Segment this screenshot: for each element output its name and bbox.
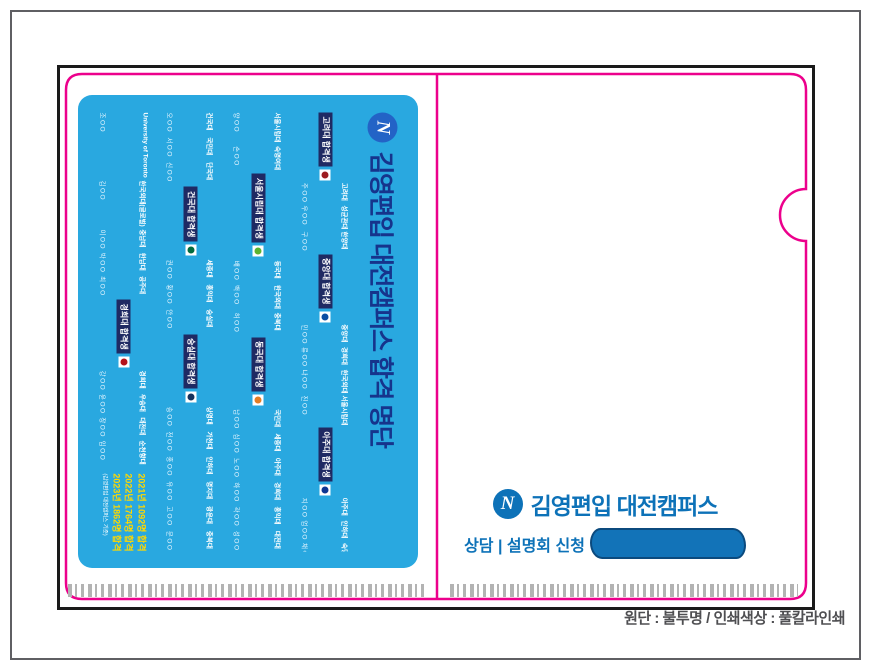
university-emblem-icon <box>253 245 264 256</box>
admitted-name: 양OO <box>233 112 243 142</box>
admitted-school: 중앙대 <box>341 324 351 345</box>
admit-entry: 세종대권OO <box>159 259 223 280</box>
admitted-name: 나OO <box>300 369 310 393</box>
cta-label: 상담 | 설명회 신청 <box>464 532 585 556</box>
admitted-name: 남OO <box>233 409 243 430</box>
admitted-name: 손OO <box>233 146 243 170</box>
admitted-name: 최OO <box>99 276 109 297</box>
admit-entry: 상명대송OO <box>159 406 223 427</box>
chip-label: 숭실대 합격생 <box>184 334 198 388</box>
admitted-name: 구OO <box>300 231 310 252</box>
admitted-school: 성균관대 <box>341 205 351 229</box>
weld-perforation-right <box>450 584 798 597</box>
chip-label: 서울시립대 합격생 <box>251 173 265 242</box>
admit-entry: 충북대허OO <box>226 312 290 333</box>
admitted-name: 류OO <box>300 346 310 367</box>
admitted-name: 조OO <box>99 112 109 177</box>
admit-entry: 우송대윤OO <box>92 393 156 414</box>
chip-label: 아주대 합격생 <box>318 427 332 481</box>
admitted-name: 엄OO <box>300 520 310 541</box>
admit-entry: 경희대강OO <box>92 370 156 391</box>
stats-line: 2021년 1092명 합격 <box>136 473 146 551</box>
admitted-name: 권OO <box>166 259 176 280</box>
admitted-name: 전OO <box>166 431 176 452</box>
university-chip: 중앙대 합격생 <box>318 254 332 322</box>
admitted-name: 노OO <box>233 457 243 478</box>
admit-entry: 고려대주OO <box>293 182 357 203</box>
admitted-name: 오OO <box>166 112 176 133</box>
weld-perforation-left <box>68 584 424 597</box>
admit-entry: 경희대류OO <box>293 346 357 367</box>
admitted-school: 순천향대 <box>139 440 149 464</box>
admit-entry: 숙명여대손OO <box>226 146 290 170</box>
admitted-name: 허OO <box>233 312 243 333</box>
admit-band: University of Toronto조OO한국외대(글로벌)김OO충남대이… <box>92 112 156 551</box>
chip-label: 동국대 합격생 <box>251 337 265 391</box>
admitted-school: 숭실대 <box>206 309 216 330</box>
admitted-school: 서울시립대 <box>273 112 283 142</box>
admit-entry: 인하대홍OO <box>159 456 223 477</box>
admit-entry: 서울시립대양OO <box>226 112 290 142</box>
admitted-school: 공주대 <box>139 276 149 297</box>
admit-entry: 대전대장OO <box>92 417 156 438</box>
admitted-school: 한국외대(글로벌) <box>139 180 149 226</box>
admit-entry: 한국외대백OO <box>226 285 290 309</box>
admitted-name: 채OO <box>300 542 310 551</box>
admitted-school: 상명대 <box>206 406 216 427</box>
admitted-school: 동국대 <box>273 260 283 281</box>
admitted-name: 고OO <box>166 506 176 527</box>
admitted-school: 한양대 <box>341 231 351 252</box>
admit-entry: 숭실대안OO <box>159 309 223 330</box>
admitted-school: 인하대 <box>206 456 216 477</box>
university-chip: 경희대 합격생 <box>117 299 131 367</box>
admit-entry: 단국대신OO <box>159 162 223 183</box>
admitted-school: 충북대 <box>206 530 216 551</box>
admitted-name: 성OO <box>233 530 243 551</box>
admitted-school: 충남대 <box>139 229 149 250</box>
stats-line: 2023년 1862명 합격 <box>111 473 121 551</box>
admitted-school: 충북대 <box>273 312 283 333</box>
admitted-school: 홍익대 <box>206 284 216 305</box>
admit-stats: 2021년 1092명 합격2022년 1764명 합격2023년 1862명 … <box>92 473 156 551</box>
chip-label: 중앙대 합격생 <box>318 254 332 308</box>
admitted-name: 곽OO <box>233 506 243 527</box>
admit-entry: 인하대엄OO <box>293 520 357 541</box>
card-title-row: N 김영편입 대전캠퍼스 합격 명단 <box>361 112 405 551</box>
admit-entry: 국민대서OO <box>159 137 223 158</box>
admitted-school: 광운대 <box>206 506 216 527</box>
admitted-school: 단국대 <box>206 162 216 183</box>
admitted-name: 신OO <box>166 162 176 183</box>
admit-bands: University of Toronto조OO한국외대(글로벌)김OO충남대이… <box>92 112 361 551</box>
university-emblem-icon <box>320 484 331 495</box>
admitted-school: 대전대 <box>273 530 283 551</box>
university-chip: 고려대 합격생 <box>318 112 332 180</box>
admit-entry: 아주대지OO <box>293 497 357 518</box>
admit-band: 서울시립대양OO숙명여대손OO서울시립대 합격생동국대배OO한국외대백OO충북대… <box>226 112 290 551</box>
admitted-name: 배OO <box>233 260 243 281</box>
university-chip: 건국대 합격생 <box>184 186 198 254</box>
admit-entry: 한양대구OO <box>293 231 357 252</box>
admitted-name: 안OO <box>166 309 176 330</box>
admitted-name: 지OO <box>300 497 310 518</box>
admitted-school: 한국외대 <box>341 369 351 393</box>
admitted-name: 주OO <box>300 182 310 203</box>
kimyoung-logo-icon: N <box>368 112 398 142</box>
admitted-school: 아주대 <box>273 457 283 478</box>
admit-entry: University of Toronto조OO <box>92 112 156 177</box>
admitted-school: 경희대 <box>139 370 149 391</box>
admitted-name: 장OO <box>99 417 109 438</box>
university-chip: 서울시립대 합격생 <box>251 173 265 256</box>
admitted-school: 국민대 <box>273 409 283 430</box>
admit-entry: 건국대오OO <box>159 112 223 133</box>
admitted-name: 서OO <box>166 137 176 158</box>
admitted-name: 홍OO <box>166 456 176 477</box>
admit-list-card: N 김영편입 대전캠퍼스 합격 명단 University of Toronto… <box>78 95 418 568</box>
admitted-school: 고려대 <box>341 182 351 203</box>
admit-entry: 홍익대곽OO <box>226 506 290 527</box>
admitted-name: 송OO <box>166 406 176 427</box>
admit-entry: 서울시립대진OO <box>293 395 357 425</box>
admitted-name: 황OO <box>166 284 176 305</box>
admitted-name: 문OO <box>166 530 176 551</box>
admitted-school: 경희대 <box>273 482 283 503</box>
admit-entry: 충남대이OO <box>92 229 156 250</box>
admit-entry: 광운대고OO <box>159 506 223 527</box>
admit-band: 고려대 합격생고려대주OO성균관대우OO한양대구OO중앙대 합격생중앙대민OO경… <box>293 112 357 551</box>
admitted-name: 심OO <box>233 433 243 454</box>
admit-band: 건국대오OO국민대서OO단국대신OO건국대 합격생세종대권OO홍익대황OO숭실대… <box>159 112 223 551</box>
kimyoung-logo-icon: N <box>493 489 523 519</box>
admit-entry: 세종대심OO <box>226 433 290 454</box>
admitted-school: 한남대 <box>139 252 149 273</box>
admitted-school: University of Toronto <box>142 112 149 177</box>
admit-entry: 명지대유OO <box>159 481 223 502</box>
admit-entry: 중앙대민OO <box>293 324 357 345</box>
admitted-school: 숙명여대 <box>273 146 283 170</box>
university-chip: 동국대 합격생 <box>251 337 265 405</box>
admit-entry: 숙명여대채OO <box>293 542 357 551</box>
admitted-school: 우송대 <box>139 393 149 414</box>
admitted-name: 윤OO <box>99 393 109 414</box>
admit-entry: 충북대문OO <box>159 530 223 551</box>
university-emblem-icon <box>253 394 264 405</box>
university-emblem-icon <box>185 244 196 255</box>
admit-entry: 성균관대우OO <box>293 205 357 229</box>
admitted-school: 서울시립대 <box>341 395 351 425</box>
admitted-name: 우OO <box>300 205 310 229</box>
admitted-school: 국민대 <box>206 137 216 158</box>
admit-entry: 순천향대임OO <box>92 440 156 464</box>
front-cover-block: N 김영편입 대전캠퍼스 상담 | 설명회 신청 <box>452 487 758 559</box>
rotated-card-content: N 김영편입 대전캠퍼스 합격 명단 University of Toronto… <box>90 108 407 555</box>
admit-entry: 한국외대나OO <box>293 369 357 393</box>
admitted-name: 유OO <box>166 481 176 502</box>
stats-caption: (김영편입 대전캠퍼스 기준) <box>101 473 109 551</box>
admit-entry: 국민대남OO <box>226 409 290 430</box>
brand-row: N 김영편입 대전캠퍼스 <box>452 487 758 521</box>
admitted-school: 경희대 <box>341 346 351 367</box>
admitted-school: 세종대 <box>206 259 216 280</box>
admitted-school: 한국외대 <box>273 285 283 309</box>
print-spec-note: 원단 : 불투명 / 인쇄색상 : 풀칼라인쇄 <box>624 607 845 628</box>
admitted-school: 아주대 <box>341 497 351 518</box>
admitted-name: 박OO <box>99 252 109 273</box>
admitted-name: 김OO <box>99 180 109 226</box>
admitted-name: 하OO <box>233 482 243 503</box>
university-emblem-icon <box>118 356 129 367</box>
admitted-name: 백OO <box>233 285 243 309</box>
admit-entry: 대전대성OO <box>226 530 290 551</box>
admitted-school: 가천대 <box>206 431 216 452</box>
university-emblem-icon <box>320 169 331 180</box>
admit-entry: 공주대최OO <box>92 276 156 297</box>
chip-label: 건국대 합격생 <box>184 186 198 240</box>
admitted-school: 대전대 <box>139 417 149 438</box>
admitted-school: 인하대 <box>341 520 351 541</box>
admitted-school: 숙명여대 <box>341 542 351 551</box>
admit-entry: 가천대전OO <box>159 431 223 452</box>
stats-line: 2022년 1764명 합격 <box>123 473 133 551</box>
admitted-school: 세종대 <box>273 433 283 454</box>
chip-label: 고려대 합격생 <box>318 112 332 166</box>
card-title: 김영편입 대전캠퍼스 합격 명단 <box>365 151 401 447</box>
chip-label: 경희대 합격생 <box>117 299 131 353</box>
admit-entry: 동국대배OO <box>226 260 290 281</box>
admitted-school: 홍익대 <box>273 506 283 527</box>
admit-entry: 아주대노OO <box>226 457 290 478</box>
admitted-school: 명지대 <box>206 481 216 502</box>
admitted-name: 임OO <box>99 440 109 464</box>
admit-entry: 경희대하OO <box>226 482 290 503</box>
admitted-name: 진OO <box>300 395 310 425</box>
cta-row: 상담 | 설명회 신청 <box>452 528 758 559</box>
university-chip: 아주대 합격생 <box>318 427 332 495</box>
admit-entry: 홍익대황OO <box>159 284 223 305</box>
admit-entry: 한국외대(글로벌)김OO <box>92 180 156 226</box>
admit-entry: 한남대박OO <box>92 252 156 273</box>
redacted-phone-number <box>590 528 746 559</box>
university-emblem-icon <box>320 311 331 322</box>
admitted-name: 이OO <box>99 229 109 250</box>
university-emblem-icon <box>185 391 196 402</box>
admitted-name: 강OO <box>99 370 109 391</box>
admitted-school: 건국대 <box>206 112 216 133</box>
university-chip: 숭실대 합격생 <box>184 334 198 402</box>
brand-name: 김영편입 대전캠퍼스 <box>531 487 718 521</box>
admitted-name: 민OO <box>300 324 310 345</box>
